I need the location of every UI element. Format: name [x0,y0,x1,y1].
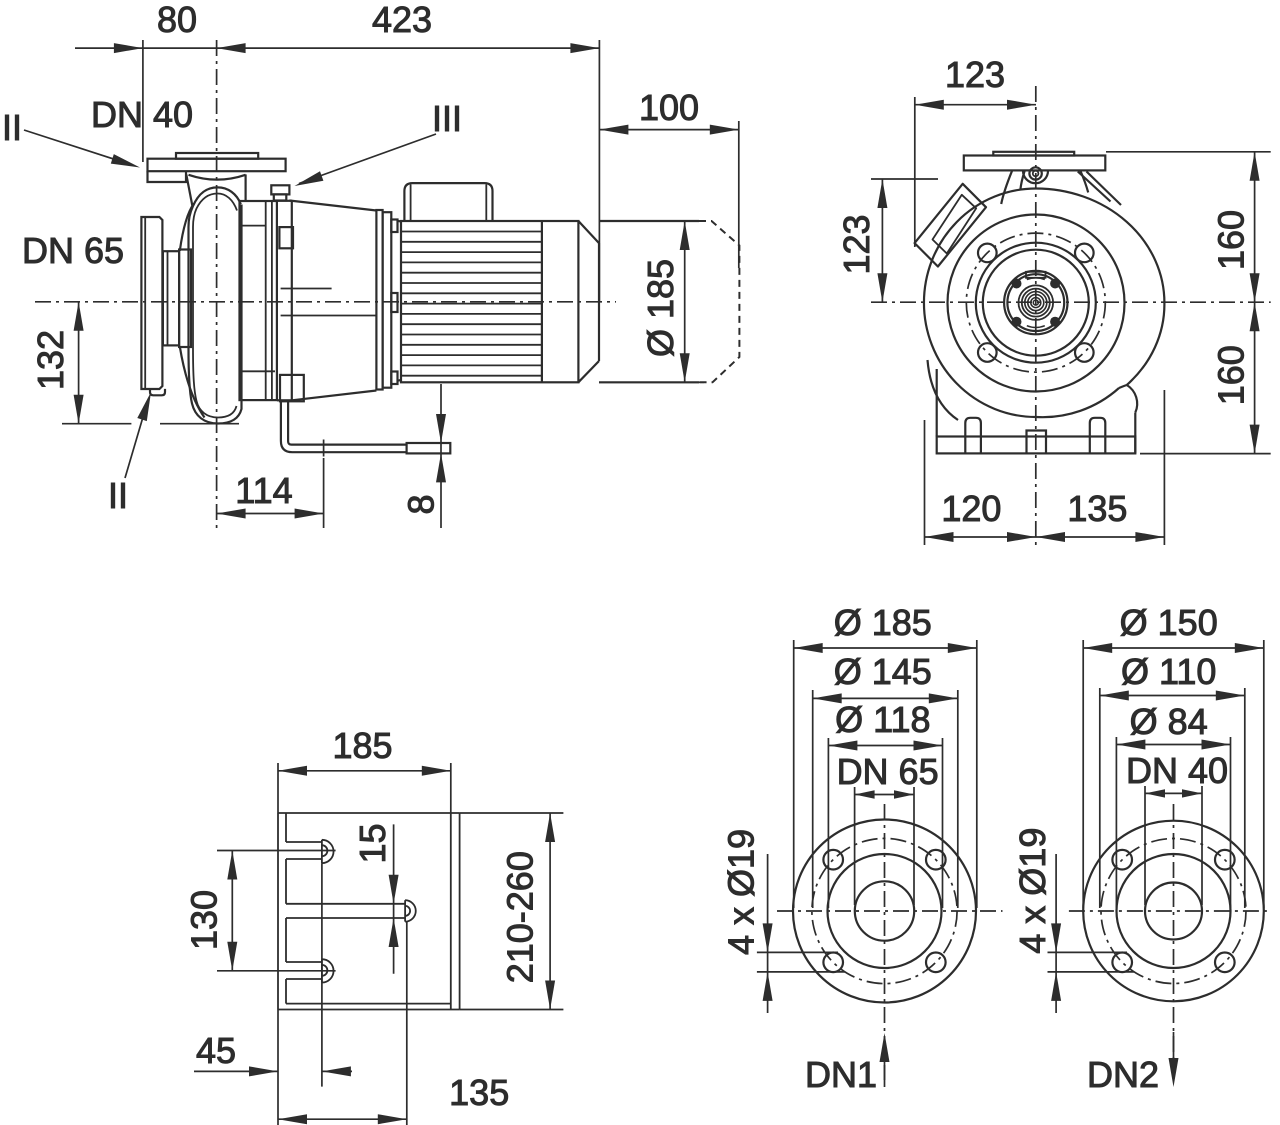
svg-text:160: 160 [1210,345,1251,405]
svg-text:120: 120 [941,488,1001,529]
svg-text:123: 123 [836,214,877,274]
svg-text:423: 423 [372,0,432,40]
svg-text:Ø 185: Ø 185 [834,602,932,643]
svg-text:II: II [2,107,22,148]
svg-text:Ø 84: Ø 84 [1130,701,1208,742]
svg-text:185: 185 [332,725,392,766]
svg-text:130: 130 [184,890,225,950]
svg-text:Ø 110: Ø 110 [1121,651,1216,692]
svg-text:80: 80 [157,0,197,40]
svg-text:160: 160 [1210,210,1251,270]
svg-text:100: 100 [639,87,699,128]
svg-text:123: 123 [945,54,1005,95]
svg-text:210-260: 210-260 [499,851,540,983]
svg-text:III: III [432,98,462,139]
svg-text:DN 65: DN 65 [837,751,939,792]
svg-text:Ø 150: Ø 150 [1120,602,1218,643]
svg-text:DN2: DN2 [1087,1054,1159,1095]
svg-text:DN 40: DN 40 [1126,750,1228,791]
svg-text:DN 40: DN 40 [91,94,193,135]
svg-text:DN 65: DN 65 [22,230,124,271]
svg-text:135: 135 [449,1072,509,1113]
svg-text:Ø 185: Ø 185 [640,259,681,357]
svg-text:Ø 145: Ø 145 [834,651,932,692]
svg-text:45: 45 [196,1030,236,1071]
svg-text:4 x Ø19: 4 x Ø19 [1012,828,1053,954]
svg-text:15: 15 [352,823,393,863]
svg-text:132: 132 [30,330,71,390]
svg-text:II: II [108,475,128,516]
svg-text:114: 114 [235,470,292,511]
svg-text:DN1: DN1 [805,1054,877,1095]
svg-text:135: 135 [1067,488,1127,529]
svg-text:8: 8 [401,494,442,514]
svg-text:Ø 118: Ø 118 [835,699,930,740]
svg-text:4 x Ø19: 4 x Ø19 [720,829,761,955]
